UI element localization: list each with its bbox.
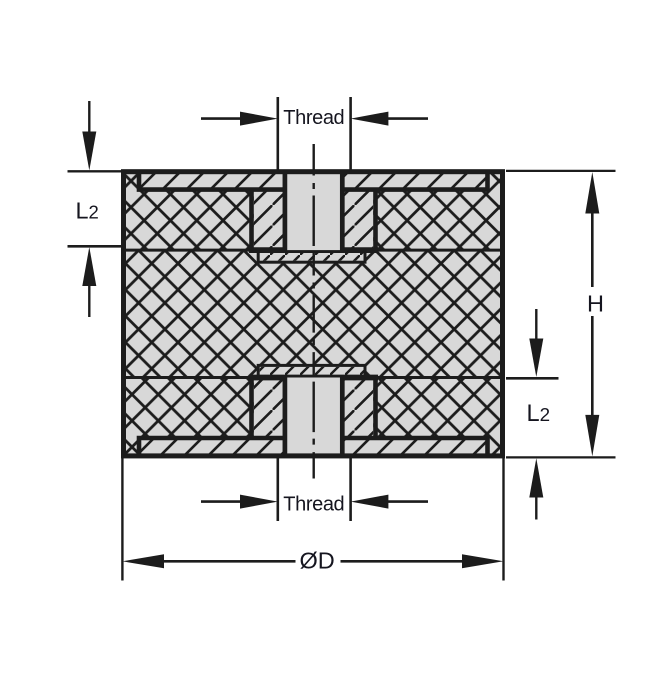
svg-text:L2: L2	[76, 198, 99, 224]
svg-text:ØD: ØD	[300, 548, 335, 574]
svg-text:L2: L2	[527, 401, 551, 427]
svg-text:H: H	[587, 291, 604, 317]
svg-text:Thread: Thread	[283, 494, 344, 516]
svg-text:Thread: Thread	[283, 107, 344, 129]
